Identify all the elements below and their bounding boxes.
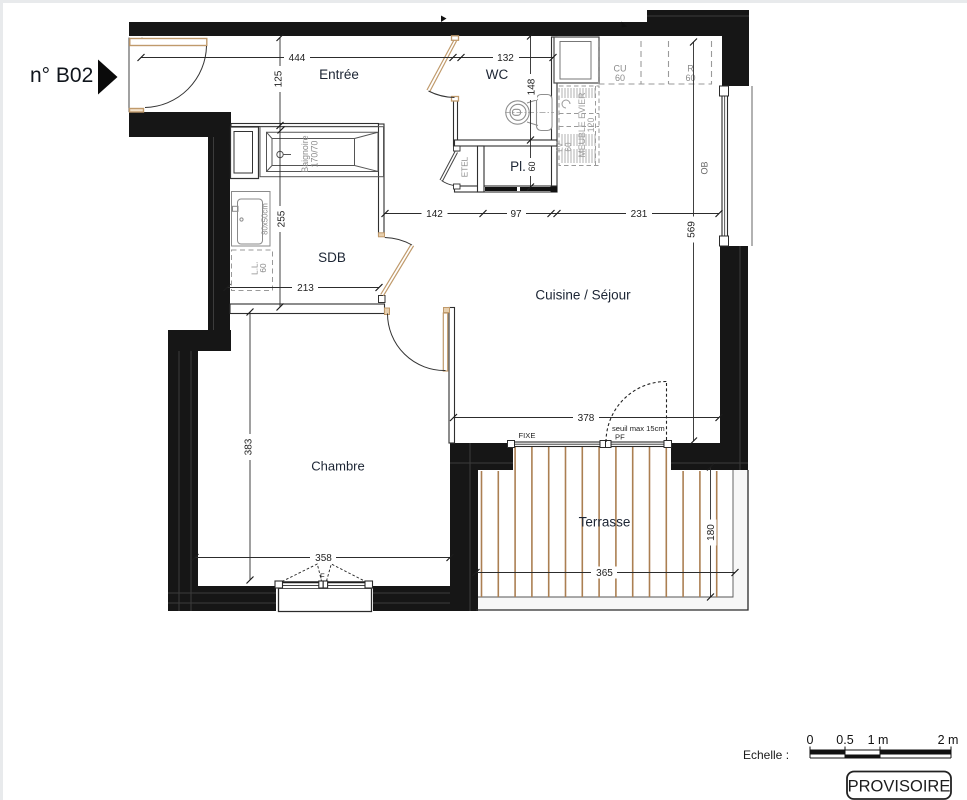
svg-text:CU: CU: [614, 64, 627, 74]
svg-text:PROVISOIRE: PROVISOIRE: [848, 778, 951, 796]
svg-text:Baignoire: Baignoire: [300, 135, 310, 172]
svg-text:Chambre: Chambre: [311, 459, 364, 474]
svg-text:60: 60: [564, 142, 573, 152]
svg-text:148: 148: [527, 78, 538, 95]
svg-text:80x50cm: 80x50cm: [261, 203, 270, 235]
svg-text:231: 231: [631, 209, 648, 220]
svg-text:358: 358: [315, 553, 332, 564]
svg-text:60: 60: [259, 263, 268, 273]
svg-text:97: 97: [510, 209, 522, 220]
svg-text:170/70: 170/70: [310, 140, 320, 167]
svg-text:1 m: 1 m: [868, 733, 889, 747]
svg-text:60: 60: [527, 161, 537, 171]
svg-text:PF: PF: [615, 433, 625, 442]
svg-text:Terrasse: Terrasse: [579, 515, 631, 530]
svg-text:60: 60: [685, 73, 695, 83]
svg-text:0.5: 0.5: [836, 733, 853, 747]
svg-text:60: 60: [615, 73, 625, 83]
svg-text:F: F: [320, 572, 325, 581]
svg-text:FIXE: FIXE: [519, 431, 536, 440]
svg-text:365: 365: [596, 568, 613, 579]
svg-text:2 m: 2 m: [938, 733, 959, 747]
svg-text:213: 213: [297, 283, 314, 294]
svg-text:0: 0: [807, 733, 814, 747]
svg-text:142: 142: [426, 209, 443, 220]
svg-text:125: 125: [273, 70, 284, 87]
svg-text:132: 132: [497, 53, 514, 64]
svg-text:OB: OB: [700, 161, 710, 174]
svg-text:Entrée: Entrée: [319, 67, 359, 82]
svg-text:n° B02: n° B02: [30, 64, 93, 87]
svg-text:383: 383: [243, 438, 254, 455]
svg-text:SDB: SDB: [318, 250, 346, 265]
svg-text:180: 180: [706, 524, 717, 541]
svg-text:120: 120: [586, 118, 596, 133]
svg-text:Pl.: Pl.: [510, 159, 526, 174]
svg-text:Cuisine / Séjour: Cuisine / Séjour: [535, 288, 631, 303]
svg-text:Echelle :: Echelle :: [743, 748, 789, 762]
svg-text:WC: WC: [486, 67, 509, 82]
svg-text:378: 378: [578, 413, 595, 424]
svg-text:ETEL: ETEL: [461, 156, 470, 177]
svg-text:255: 255: [277, 210, 288, 227]
svg-text:444: 444: [289, 53, 306, 64]
svg-text:569: 569: [686, 221, 697, 238]
